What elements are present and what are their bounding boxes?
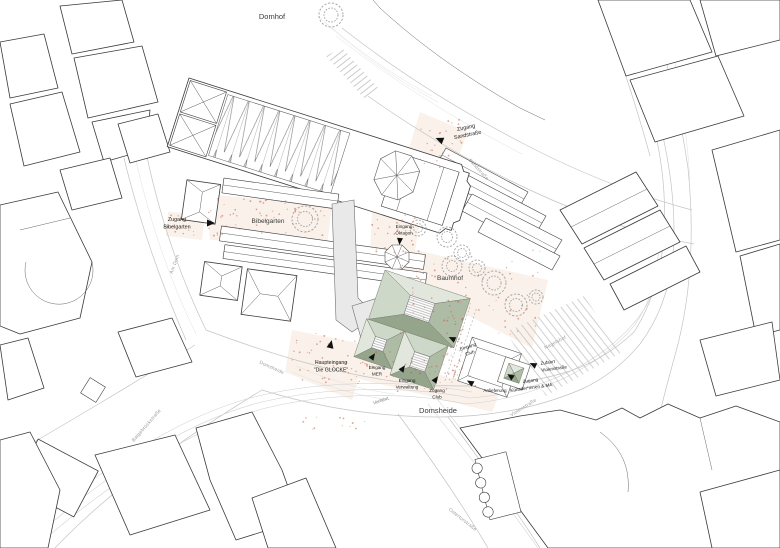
label-anlieferung: Anlieferung bbox=[483, 388, 507, 393]
label-haupteingang-2: "Die GLOCKE" bbox=[314, 368, 349, 374]
label-haupteingang-1: Haupteingang bbox=[315, 360, 347, 366]
label-zugang-club-2: Club bbox=[432, 395, 442, 400]
label-zugang-bibelgarten-1: Zugang bbox=[168, 217, 186, 223]
site-plan-drawing: Domhof Bibelgarten Baumhof Domsheide Zug… bbox=[0, 0, 780, 548]
label-baumhof: Baumhof bbox=[437, 275, 463, 282]
label-eingang-verwaltung-1: Eingang bbox=[399, 378, 416, 383]
octagon-pavilion bbox=[385, 245, 409, 269]
label-street-balgebrueckstrasse: Balgebrückstraße bbox=[131, 408, 163, 443]
label-zugang-kuenstler-1: Zugang bbox=[522, 377, 539, 384]
label-eingang-oktagon-2: Oktagon bbox=[395, 231, 413, 236]
label-bibelgarten: Bibelgarten bbox=[252, 218, 285, 225]
label-street-domsheide: Domsheide bbox=[258, 360, 285, 376]
label-eingang-mer-2: MER bbox=[372, 372, 383, 377]
label-eingang-verwaltung-2: Verwaltung bbox=[396, 385, 419, 390]
label-domsheide-square: Domsheide bbox=[419, 406, 457, 415]
label-zugang-bibelgarten-2: Bibelgarten bbox=[163, 225, 190, 231]
label-zugang-club-1: Zugang bbox=[429, 388, 445, 393]
label-street-am-dom: Am Dom bbox=[169, 254, 182, 275]
label-vorfahrt: Vorfahrt bbox=[372, 395, 390, 405]
site-plan-page: Domhof Bibelgarten Baumhof Domsheide Zug… bbox=[0, 0, 780, 548]
label-street-ostertorstrasse: Ostertorstraße bbox=[447, 507, 478, 533]
label-eingang-mer-1: Eingang bbox=[369, 365, 386, 370]
label-domhof: Domhof bbox=[259, 12, 286, 21]
label-eingang-oktagon-1: Eingang bbox=[396, 224, 413, 229]
